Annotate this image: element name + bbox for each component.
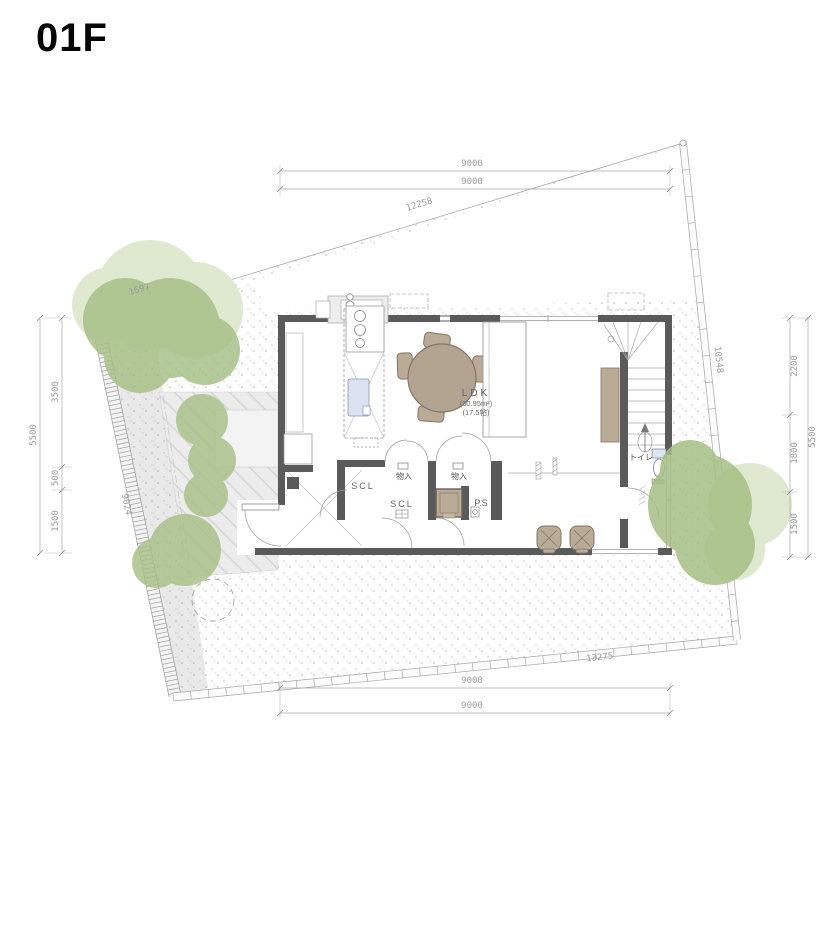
shoe-cabinet (436, 489, 462, 518)
floor-plan-page: 01F (0, 0, 840, 929)
burner (355, 311, 366, 322)
hall-chair (570, 526, 594, 553)
stair-cabinet (601, 368, 619, 442)
burner (356, 339, 365, 348)
dim-left-seg-1: 3500 (51, 381, 61, 403)
tree-northwest (72, 240, 243, 393)
entry-pier (287, 477, 299, 489)
counter-desk (483, 322, 526, 437)
dim-bottom-inner: 9000 (461, 676, 483, 686)
building: LDK (30.95m²) (17.5帖) (237, 293, 672, 555)
scl-symbol (396, 510, 408, 518)
storage-pivot (453, 463, 463, 469)
toilet-label: トイレ (629, 453, 653, 462)
dim-bottom-overall: 9000 (461, 701, 483, 711)
stair-wall (620, 352, 628, 487)
stair-wall (620, 519, 628, 548)
dim-right-seg-1: 2200 (790, 355, 800, 377)
ldk-area-m2: (30.95m²) (460, 399, 493, 408)
dim-right-seg-2: 1800 (790, 442, 800, 464)
dim-left-overall: 5500 (29, 424, 39, 446)
dim-left-seg-2: 500 (51, 470, 61, 486)
scl-label-1: SCL (351, 481, 375, 491)
floor-title: 01F (36, 16, 108, 61)
ps-label: P.S (474, 498, 487, 508)
storage-label-1: 物入 (396, 471, 412, 481)
dim-boundary-south: 13275 (586, 652, 614, 665)
dim-boundary-east: 10548 (712, 346, 725, 374)
scl-label-2: SCL (390, 499, 414, 509)
kitchen-wall-counter (286, 333, 303, 432)
hall-chair (537, 526, 561, 553)
dim-right-overall: 5500 (808, 426, 818, 448)
dim-top-overall: 9000 (461, 159, 483, 169)
site-upper-clear-zone (252, 145, 700, 310)
ldk-label: LDK (462, 388, 490, 399)
dim-left-seg-3: 1500 (51, 510, 61, 532)
dim-boundary-north: 12258 (405, 196, 434, 213)
dim-right-seg-3: 1500 (790, 513, 800, 535)
floor-plan-drawing: LDK (30.95m²) (17.5帖) (0, 0, 840, 929)
storage-label-2: 物入 (451, 471, 467, 481)
ldk-area-tatami: (17.5帖) (462, 407, 490, 417)
burner (355, 325, 366, 336)
dim-top-inner: 9000 (461, 177, 483, 187)
storage-pivot (398, 463, 408, 469)
kitchen-west-cabinet (284, 434, 312, 464)
